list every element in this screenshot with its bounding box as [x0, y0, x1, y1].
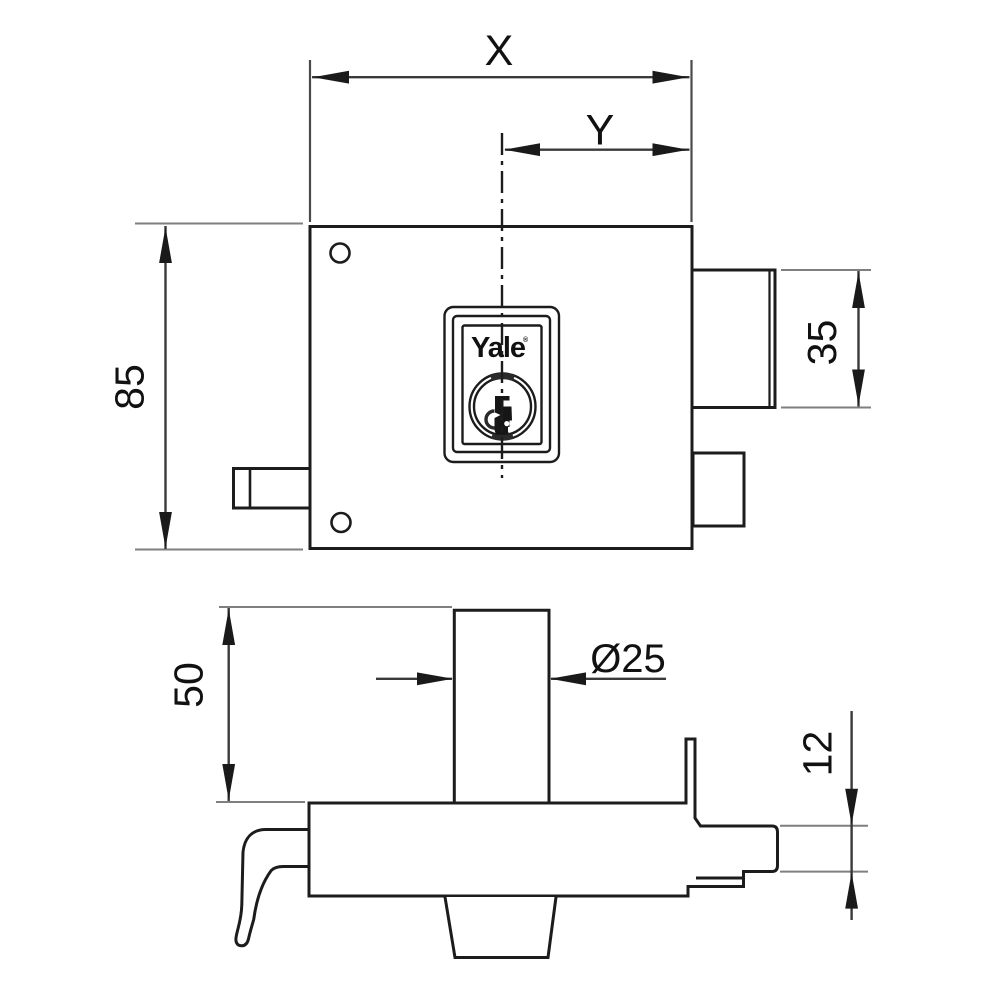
svg-text:35: 35	[799, 320, 845, 366]
svg-text:X: X	[485, 27, 514, 75]
svg-text:85: 85	[107, 364, 153, 410]
svg-text:12: 12	[795, 731, 841, 777]
svg-text:Yale: Yale	[471, 332, 526, 364]
svg-text:Y: Y	[586, 107, 615, 155]
svg-text:®: ®	[523, 336, 529, 344]
svg-text:Ø25: Ø25	[590, 637, 666, 681]
svg-text:50: 50	[166, 662, 212, 708]
